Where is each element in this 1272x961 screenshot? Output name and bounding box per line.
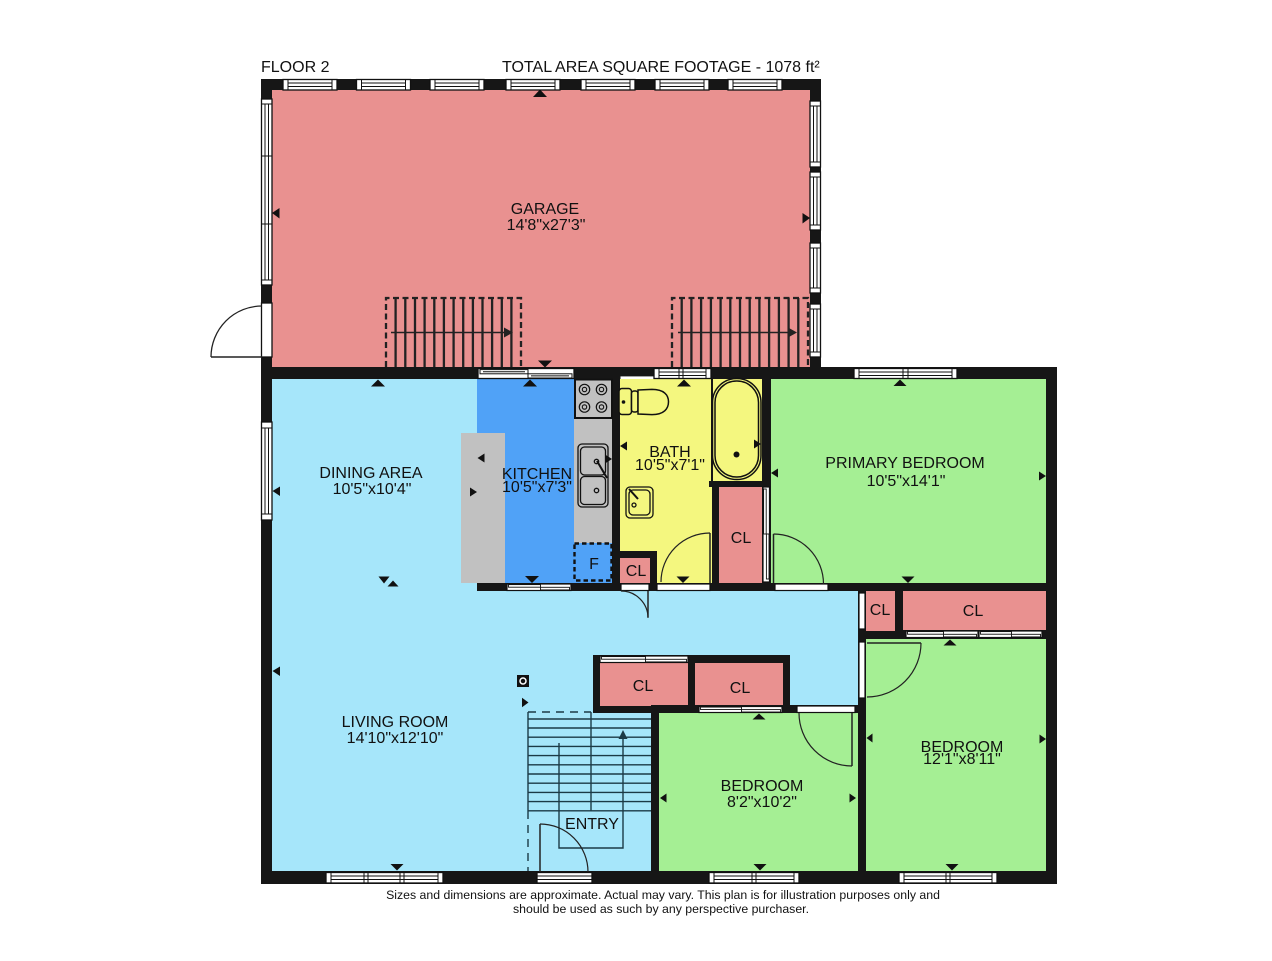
svg-text:Sizes and dimensions are appro: Sizes and dimensions are approximate. Ac…	[386, 888, 940, 902]
svg-text:CL: CL	[626, 563, 647, 580]
svg-text:LIVING ROOM: LIVING ROOM	[342, 714, 449, 731]
svg-text:CL: CL	[730, 680, 751, 697]
svg-text:10'5"x14'1": 10'5"x14'1"	[867, 473, 946, 490]
svg-text:8'2"x10'2": 8'2"x10'2"	[727, 794, 797, 811]
svg-text:CL: CL	[963, 603, 984, 620]
svg-text:GARAGE: GARAGE	[511, 201, 579, 218]
svg-text:10'5"x10'4": 10'5"x10'4"	[333, 481, 412, 498]
svg-text:FLOOR 2: FLOOR 2	[261, 59, 330, 76]
svg-text:ENTRY: ENTRY	[565, 816, 619, 833]
svg-text:12'1"x8'11": 12'1"x8'11"	[923, 751, 1001, 768]
svg-text:DINING AREA: DINING AREA	[319, 465, 422, 482]
svg-text:PRIMARY BEDROOM: PRIMARY BEDROOM	[825, 455, 984, 472]
svg-text:F: F	[589, 556, 599, 573]
svg-text:BEDROOM: BEDROOM	[721, 778, 804, 795]
svg-text:14'10"x12'10": 14'10"x12'10"	[347, 730, 444, 747]
svg-text:10'5"x7'1": 10'5"x7'1"	[635, 457, 705, 474]
svg-text:should be used as such by any: should be used as such by any perspectiv…	[513, 902, 809, 916]
svg-text:10'5"x7'3": 10'5"x7'3"	[502, 479, 572, 496]
svg-text:CL: CL	[870, 602, 891, 619]
svg-text:14'8"x27'3": 14'8"x27'3"	[507, 217, 586, 234]
svg-text:TOTAL AREA SQUARE FOOTAGE - 10: TOTAL AREA SQUARE FOOTAGE - 1078 ft²	[502, 59, 820, 76]
svg-text:CL: CL	[731, 530, 752, 547]
svg-text:CL: CL	[633, 678, 654, 695]
